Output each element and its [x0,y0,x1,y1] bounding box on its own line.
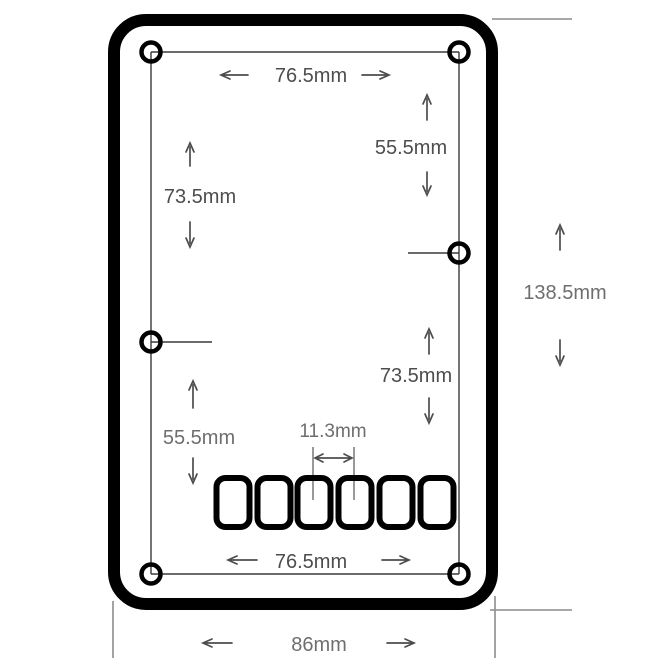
drawing-canvas: 76.5mm 55.5mm 73.5mm 138.5mm 73.5mm 55.5… [0,0,670,670]
label-lower-right-vertical: 73.5mm [380,365,452,387]
label-overall-width: 86mm [291,634,347,656]
plate-outline [114,20,492,604]
label-overall-height: 138.5mm [523,282,606,304]
label-slot-pitch: 11.3mm [299,421,366,442]
label-top-hole-spacing: 76.5mm [275,65,347,87]
down-arrow-icon [556,340,564,365]
label-lower-left-vertical: 55.5mm [163,427,235,449]
label-upper-left-vertical: 73.5mm [164,186,236,208]
right-arrow-icon [387,639,414,647]
dimension-drawing-svg: 76.5mm 55.5mm 73.5mm 138.5mm 73.5mm 55.5… [0,0,670,670]
left-arrow-icon [203,639,232,647]
up-arrow-icon [556,225,564,250]
label-bottom-hole-spacing: 76.5mm [275,551,347,573]
label-upper-right-vertical: 55.5mm [375,137,447,159]
